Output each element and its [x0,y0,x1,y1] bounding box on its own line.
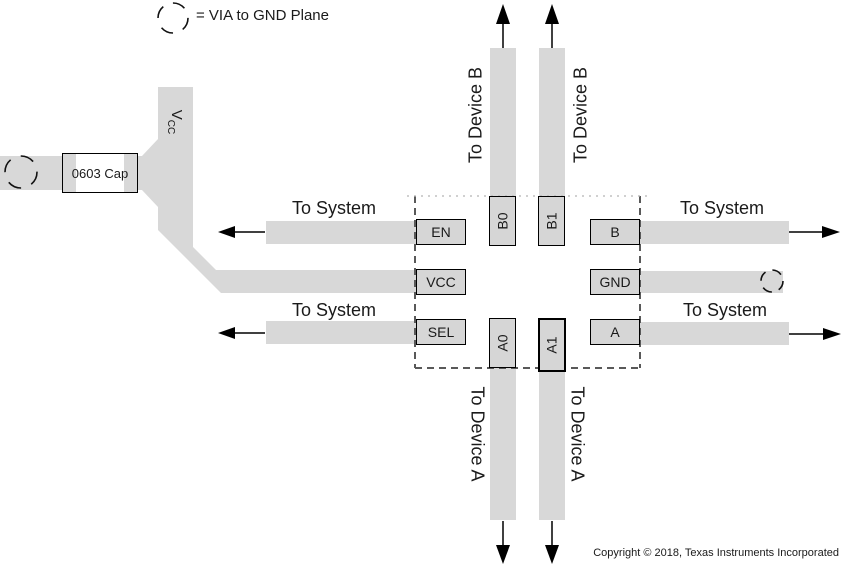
legend-label: = VIA to GND Plane [196,7,329,24]
pin-a0: A0 [489,318,516,368]
cap-0603: 0603 Cap [62,153,138,193]
copyright-text: Copyright © 2018, Texas Instruments Inco… [593,547,839,559]
legend-via-icon [158,3,188,33]
to-system-label-en: To System [264,198,404,219]
arrow-right-b-icon [789,226,840,238]
arrow-down-a0-icon [496,521,510,564]
to-device-b-label-1: To Device B [466,67,487,163]
to-device-b-label-2: To Device B [571,67,592,163]
arrow-up-b0-icon [496,4,510,48]
pin-b1: B1 [538,196,565,246]
pin-sel: SEL [416,319,466,345]
pin-b0: B0 [489,196,516,246]
pin-a: A [590,319,640,345]
pin-gnd: GND [590,269,640,295]
to-device-a-label-1: To Device A [467,386,488,481]
to-system-label-sel: To System [264,300,404,321]
trace-flare-bottom [142,190,158,207]
to-system-label-a: To System [655,300,795,321]
pin-b: B [590,219,640,245]
gnd-trace-via-icon [761,270,783,292]
arrow-up-b1-icon [545,4,559,48]
to-device-a-label-2: To Device A [567,386,588,481]
pin-en: EN [416,219,466,245]
arrow-left-en-icon [218,226,265,238]
arrow-down-a1-icon [545,521,559,564]
vcc-trace-label: VCC [165,110,185,134]
pin-vcc: VCC [416,269,466,295]
to-system-label-b: To System [652,198,792,219]
arrow-right-a-icon [789,328,841,340]
trace-flare-top [142,139,158,156]
pcb-layout-diagram: = VIA to GND Plane 0603 Cap VCC EN VCC S… [0,0,855,569]
pin-a1: A1 [538,318,566,372]
arrow-left-sel-icon [218,327,265,339]
trace-vcc [158,87,418,293]
cap-label: 0603 Cap [72,166,128,181]
